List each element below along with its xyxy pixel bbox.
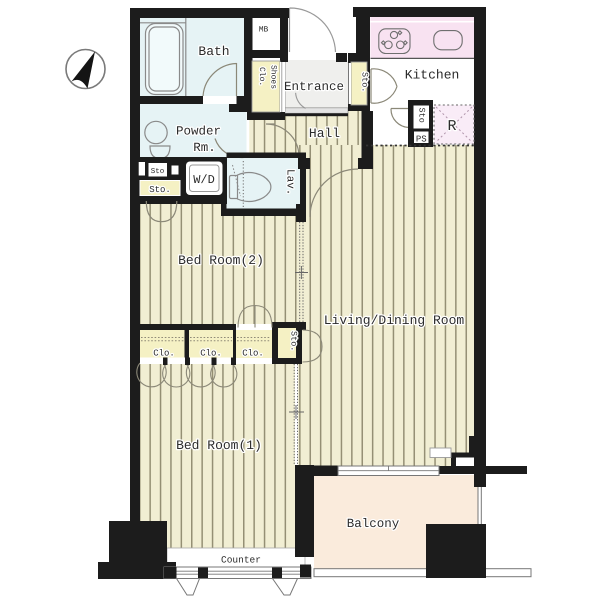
svg-text:Sto: Sto xyxy=(151,167,165,176)
svg-text:Sto: Sto xyxy=(417,108,427,123)
svg-text:Counter: Counter xyxy=(221,555,261,566)
svg-text:Entrance: Entrance xyxy=(284,80,344,94)
svg-text:Bed Room(2): Bed Room(2) xyxy=(178,253,264,268)
svg-text:Balcony: Balcony xyxy=(347,517,400,531)
svg-text:Powder: Powder xyxy=(176,125,221,139)
svg-text:R: R xyxy=(447,118,456,135)
svg-text:Sto.: Sto. xyxy=(360,72,370,92)
svg-text:MB: MB xyxy=(259,26,269,35)
svg-text:Sto.: Sto. xyxy=(289,331,299,351)
svg-text:Clo.: Clo. xyxy=(242,349,264,359)
svg-text:Bath: Bath xyxy=(198,44,229,59)
svg-text:Kitchen: Kitchen xyxy=(405,68,460,83)
svg-text:Rm.: Rm. xyxy=(193,141,216,155)
svg-text:W/D: W/D xyxy=(193,173,215,187)
svg-text:Bed Room(1): Bed Room(1) xyxy=(176,438,262,453)
svg-text:Sto.: Sto. xyxy=(149,185,171,195)
svg-text:Lav.: Lav. xyxy=(284,169,296,195)
svg-text:PS: PS xyxy=(416,135,427,145)
svg-text:Clo.: Clo. xyxy=(153,349,175,359)
svg-text:Clo.: Clo. xyxy=(200,349,222,359)
svg-text:Hall: Hall xyxy=(309,126,340,141)
svg-text:Living/Dining Room: Living/Dining Room xyxy=(324,313,465,328)
